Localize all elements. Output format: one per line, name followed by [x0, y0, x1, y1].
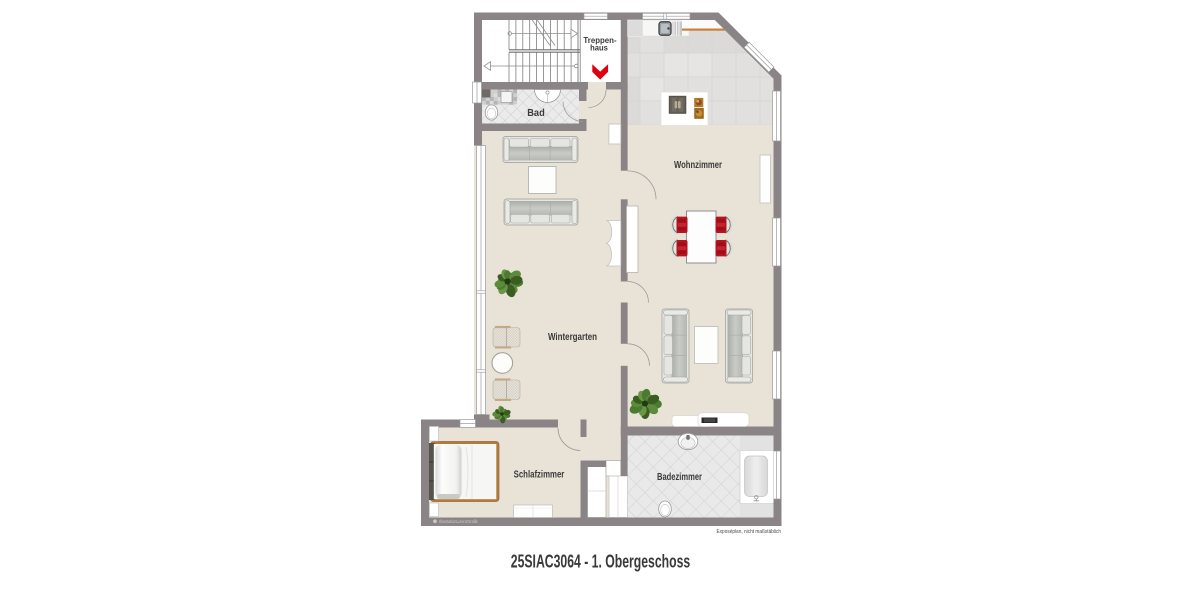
svg-text:IllustrationLizenzGrafik: IllustrationLizenzGrafik [439, 519, 478, 524]
svg-text:haus: haus [590, 43, 608, 53]
svg-text:Schlafzimmer: Schlafzimmer [514, 469, 565, 480]
svg-text:Badezimmer: Badezimmer [657, 472, 702, 483]
svg-text:Bad: Bad [527, 108, 545, 119]
svg-text:Wintergarten: Wintergarten [548, 332, 597, 343]
svg-text:Wohnzimmer: Wohnzimmer [674, 160, 722, 171]
svg-text:25SIAC3064 - 1. Obergeschoss: 25SIAC3064 - 1. Obergeschoss [511, 552, 690, 572]
svg-text:Exposéplan, nicht maßstäblich: Exposéplan, nicht maßstäblich [717, 529, 782, 535]
